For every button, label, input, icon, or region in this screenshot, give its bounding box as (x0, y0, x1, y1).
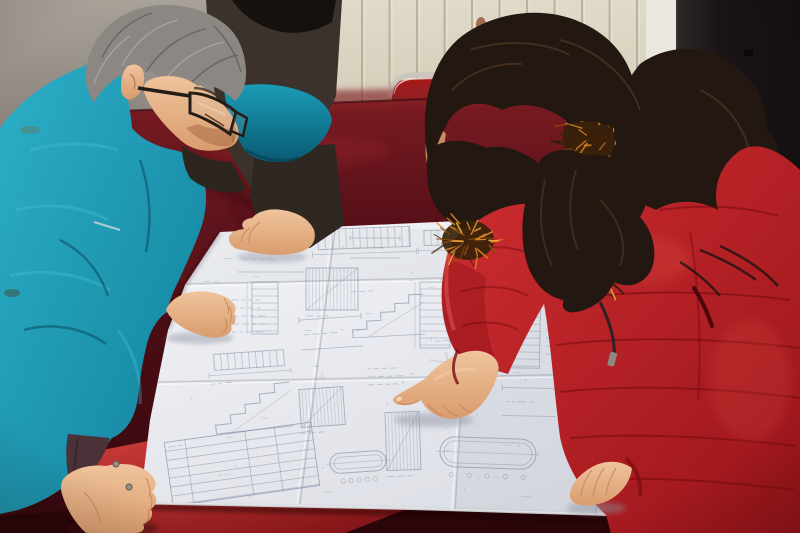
photo-scene (0, 0, 800, 533)
vignette (0, 0, 800, 533)
